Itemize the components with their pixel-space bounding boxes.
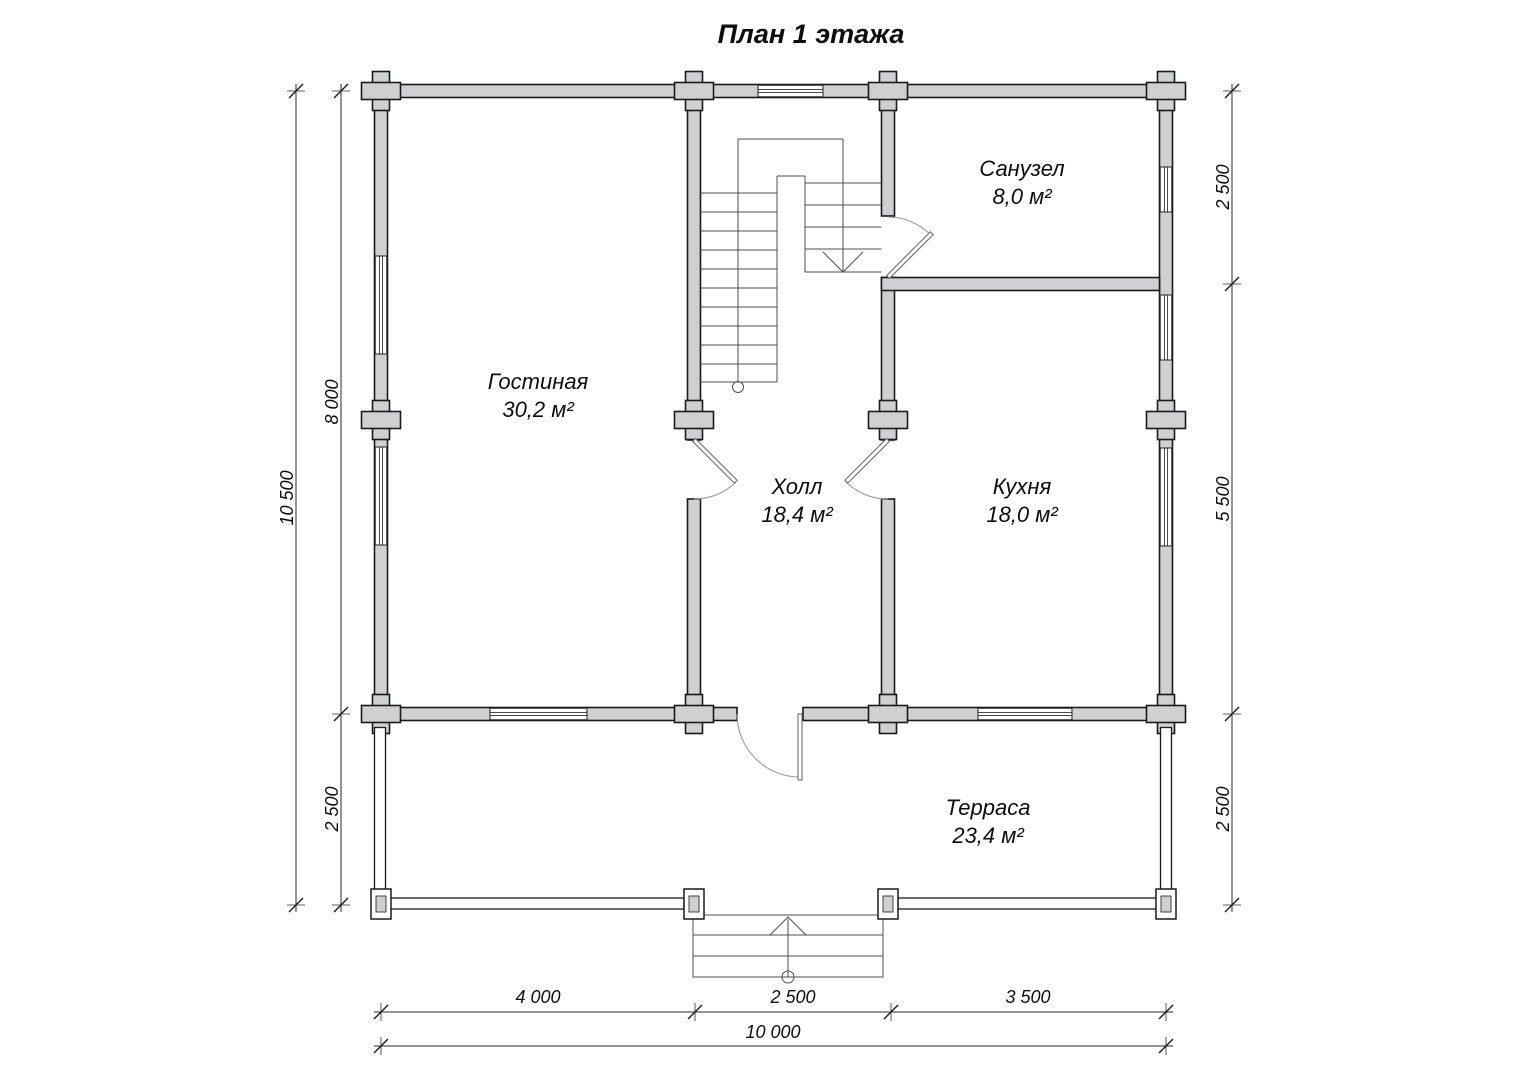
dimension-right: 2 500 5 500 2 500	[1213, 84, 1241, 912]
dim-label-right-bottom: 2 500	[1213, 786, 1233, 832]
window-living-west-2	[375, 447, 388, 545]
room-area: 18,4 м²	[761, 502, 833, 527]
dimension-left-outer: 10 500	[277, 84, 305, 912]
dimension-bottom-segments: 4 000 2 500 3 500	[374, 987, 1173, 1021]
room-area: 8,0 м²	[992, 184, 1052, 209]
window-kitchen-east-2	[1160, 448, 1173, 546]
room-name: Терраса	[946, 795, 1031, 820]
window-kitchen-south	[978, 708, 1072, 721]
window-bathroom-east	[1160, 167, 1173, 212]
window-living-south	[490, 708, 587, 721]
dim-label-left-lower: 2 500	[322, 786, 342, 832]
dim-label-right-top: 2 500	[1213, 164, 1233, 210]
room-label-terrace: Терраса 23,4 м²	[946, 795, 1031, 848]
dim-label-bottom-total: 10 000	[745, 1022, 800, 1042]
room-label-bathroom: Санузел 8,0 м²	[979, 156, 1064, 209]
interior-walls	[688, 98, 1160, 708]
room-label-living: Гостиная 30,2 м²	[488, 369, 589, 422]
dim-label-left-total: 10 500	[277, 470, 297, 525]
room-name: Гостиная	[488, 369, 589, 394]
dim-label-bottom-left: 4 000	[515, 987, 560, 1007]
dimension-bottom-total: 10 000	[374, 1022, 1173, 1055]
room-name: Кухня	[993, 474, 1052, 499]
entry-steps	[693, 915, 883, 983]
floor-plan-drawing: 10 500 8 000 2 500 2 500 5 500 2 500 4 0…	[0, 0, 1528, 1080]
door-living-hall	[693, 439, 738, 499]
page-title: План 1 этажа	[718, 19, 905, 49]
stair-walkline-marker	[733, 382, 744, 393]
dim-label-bottom-center: 2 500	[769, 987, 815, 1007]
dim-label-bottom-right: 3 500	[1005, 987, 1050, 1007]
room-name: Санузел	[979, 156, 1064, 181]
door-kitchen-hall	[845, 439, 890, 499]
staircase	[701, 139, 882, 393]
room-area: 18,0 м²	[986, 502, 1058, 527]
room-label-hall: Холл 18,4 м²	[761, 474, 833, 527]
dimension-left-inner: 8 000 2 500	[322, 84, 350, 912]
room-area: 30,2 м²	[502, 397, 574, 422]
floor-plan-page: 10 500 8 000 2 500 2 500 5 500 2 500 4 0…	[0, 0, 1528, 1080]
window-kitchen-east-1	[1160, 295, 1173, 360]
dim-label-left-upper: 8 000	[322, 379, 342, 424]
window-living-west-1	[375, 256, 388, 354]
terrace-railing	[375, 728, 1172, 910]
door-bathroom	[887, 217, 934, 278]
room-label-kitchen: Кухня 18,0 м²	[986, 474, 1058, 527]
room-name: Холл	[771, 474, 823, 499]
room-area: 23,4 м²	[951, 823, 1024, 848]
window-stairhall-north	[758, 85, 823, 98]
dim-label-right-middle: 5 500	[1213, 476, 1233, 521]
door-terrace	[737, 714, 802, 780]
